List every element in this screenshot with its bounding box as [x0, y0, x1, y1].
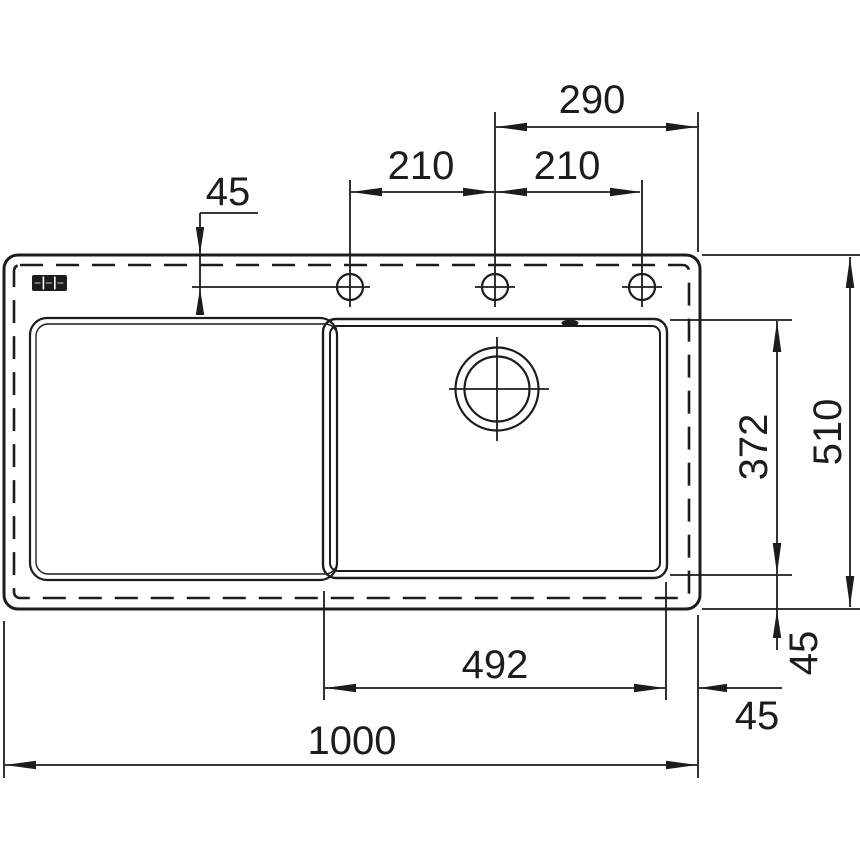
- tap-holes: [337, 274, 662, 300]
- logo-mark: [46, 282, 52, 283]
- drainboard-inner-edge: [36, 324, 337, 574]
- dim-label-372: 372: [732, 414, 776, 481]
- dim-label-45-horizontal: 45: [735, 694, 780, 738]
- dimension-372: 372: [732, 321, 781, 574]
- arrowhead: [666, 123, 697, 132]
- dimension-45-right-vertical: 45: [773, 575, 826, 675]
- arrowhead: [496, 188, 527, 197]
- dimension-45-bottom-horizontal: 45: [699, 684, 782, 738]
- arrowhead: [634, 684, 665, 693]
- franke-logo-icon: [32, 275, 67, 291]
- arrowhead: [773, 321, 782, 352]
- arrowhead: [351, 188, 382, 197]
- bowl: [323, 319, 667, 578]
- dimension-492: 492: [325, 643, 665, 692]
- sink-outline: [4, 255, 700, 609]
- sink-outer-edge: [4, 255, 700, 609]
- technical-drawing: 290 210 210 45 372 510 45: [0, 0, 860, 860]
- dimension-510: 510: [806, 257, 854, 607]
- dim-label-45-vertical: 45: [782, 631, 826, 676]
- dimension-210-pair: 210 210: [351, 144, 641, 196]
- dim-label-210-left: 210: [388, 144, 455, 188]
- dimension-1000: 1000: [5, 719, 697, 769]
- drainboard-outer-edge: [30, 318, 337, 580]
- overflow-slot: [562, 320, 579, 326]
- drainboard: [30, 318, 337, 580]
- dim-label-1000: 1000: [308, 719, 397, 763]
- arrowhead: [610, 188, 641, 197]
- arrowhead: [5, 761, 36, 770]
- arrowhead: [496, 123, 527, 132]
- logo-divider: [54, 277, 56, 290]
- drain: [449, 337, 549, 441]
- logo-divider: [43, 277, 45, 290]
- dimension-45-top: 45: [196, 170, 258, 315]
- bowl-inner-edge: [330, 326, 660, 571]
- sink-dimension-diagram: 290 210 210 45 372 510 45: [0, 0, 860, 860]
- arrowhead: [699, 684, 727, 692]
- dim-label-492: 492: [462, 643, 529, 687]
- arrowhead: [846, 576, 855, 607]
- dimension-290: 290: [496, 78, 697, 131]
- dim-label-45-top: 45: [206, 170, 251, 214]
- bowl-outer-edge: [323, 319, 667, 578]
- arrowhead: [666, 761, 697, 770]
- arrowhead: [773, 610, 781, 638]
- cutout-dashed-line: [14, 265, 689, 598]
- arrowhead: [196, 227, 204, 254]
- arrowhead: [773, 543, 782, 574]
- dim-label-210-right: 210: [534, 144, 601, 188]
- arrowhead: [325, 684, 356, 693]
- logo-mark: [57, 282, 63, 283]
- arrowhead: [846, 257, 855, 288]
- logo-mark: [35, 282, 41, 283]
- arrowhead: [463, 188, 494, 197]
- dim-label-290: 290: [559, 78, 626, 122]
- dim-label-510: 510: [806, 399, 850, 466]
- arrowhead: [196, 288, 204, 315]
